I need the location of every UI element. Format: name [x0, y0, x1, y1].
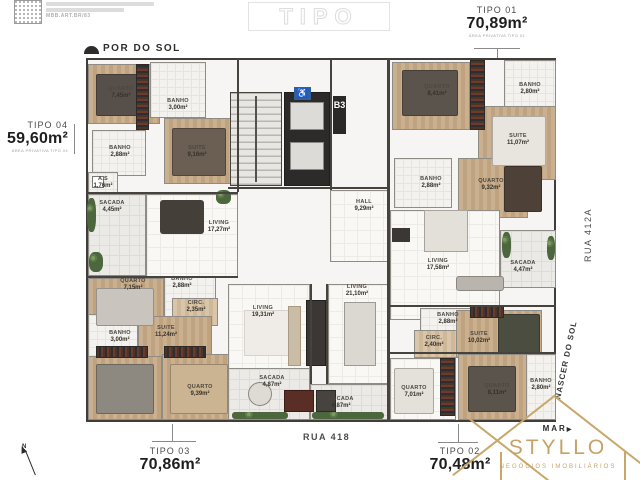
room-label: QUARTO7,01m² — [401, 385, 427, 399]
wall — [389, 352, 556, 354]
room-label: BANHO2,80m² — [530, 378, 552, 392]
room-label: LIVING17,27m² — [208, 220, 230, 234]
wardrobe — [440, 358, 455, 416]
room-label: QUARTO8,41m² — [424, 84, 450, 98]
dining-table — [160, 200, 204, 234]
tipo-watermark-text: TIPO — [279, 4, 358, 30]
street-rua-412a: RUA 412A — [583, 208, 593, 262]
plant-icon — [89, 252, 103, 272]
room-label: BANHO2,88m² — [420, 176, 442, 190]
block-sign-b3: B3 — [333, 96, 346, 134]
unit-area: 70,48m² — [410, 456, 510, 474]
room-label: SACADA4,47m² — [510, 260, 535, 274]
elevator-car — [290, 142, 324, 170]
unit-caption: ÁREA PRIVATIVA TIPO 04 — [4, 148, 68, 153]
sunset-icon — [84, 46, 99, 54]
bed — [96, 288, 154, 326]
room-label: SUITE11,07m² — [507, 133, 529, 147]
room-label: SACADA4,87m² — [328, 396, 353, 410]
connector-line — [458, 424, 459, 442]
wall — [86, 192, 238, 194]
shelf — [470, 60, 485, 130]
room-label: BANHO3,00m² — [167, 98, 189, 112]
sunrise-label: NASCER DO SOL — [553, 320, 578, 400]
connector-line — [74, 124, 75, 154]
fine-print-line — [46, 2, 154, 6]
unit-label: TIPO 03 — [120, 446, 220, 456]
room-label: LIVING21,10m² — [346, 284, 368, 298]
unit-tipo-01: TIPO 01 70,89m² ÁREA PRIVATIVA TIPO 01 — [447, 5, 547, 38]
dining-table — [344, 302, 376, 366]
unit-label: TIPO 02 — [410, 446, 510, 456]
bed — [498, 314, 540, 354]
connector-line — [438, 442, 478, 443]
unit-label: TIPO 01 — [447, 5, 547, 15]
compass-needle-icon — [25, 451, 36, 475]
tipo-watermark: TIPO — [248, 2, 390, 31]
qr-code — [14, 0, 42, 24]
unit-area: 59,60m² — [4, 130, 68, 148]
sunset-label: POR DO SOL — [103, 43, 181, 54]
room-label: QUARTO9,32m² — [478, 178, 504, 192]
room-label: CIRC.2,40m² — [424, 335, 443, 349]
room-label: LIVING19,31m² — [252, 305, 274, 319]
unit-tipo-03: TIPO 03 70,86m² — [120, 446, 220, 474]
wall — [237, 58, 239, 192]
room-label: LIVING17,58m² — [427, 258, 449, 272]
stairs-rail — [255, 96, 257, 182]
sofa — [288, 306, 301, 366]
logo-arrow-icon: ▶ — [567, 427, 574, 433]
logo-mar-text: MAR — [543, 424, 567, 433]
room-label: SUITE10,02m² — [468, 331, 490, 345]
room-label: SACADA4,87m² — [259, 375, 284, 389]
room-label: QUARTO9,39m² — [187, 384, 213, 398]
plant-icon — [547, 236, 555, 260]
kitchen-counter — [306, 300, 326, 366]
fine-print-line — [46, 8, 124, 12]
qr-link-text: MBB.ART.BR/83 — [46, 13, 91, 19]
logo-brand-subtitle: NEGÓCIOS IMOBILIÁRIOS — [500, 464, 617, 470]
wall — [330, 58, 332, 190]
logo-brand-top: MAR▶ — [543, 424, 574, 433]
wall — [389, 305, 556, 307]
connector-line — [172, 424, 173, 441]
bed — [96, 364, 154, 414]
kitchen-counter — [392, 228, 410, 242]
room-label: BANHO2,80m² — [519, 82, 541, 96]
unit-tipo-04: TIPO 04 59,60m² ÁREA PRIVATIVA TIPO 04 — [4, 120, 68, 153]
unit-area: 70,89m² — [447, 15, 547, 33]
unit-label: TIPO 04 — [4, 120, 68, 130]
shelf — [96, 346, 148, 358]
room-label: QUARTO7,45m² — [108, 86, 134, 100]
connector-line — [152, 441, 196, 442]
room-label: A.S1,76m² — [93, 176, 112, 190]
bed — [504, 166, 542, 212]
dining-table — [424, 210, 468, 252]
connector-line — [497, 48, 498, 58]
room-label: BANHO2,88m² — [109, 145, 131, 159]
elevator-car — [290, 102, 324, 130]
room-label: BANHO2,88m² — [171, 276, 193, 290]
room-label: BANHO3,00m² — [109, 330, 131, 344]
room-label: SACADA4,45m² — [99, 200, 124, 214]
hedge-icon — [312, 412, 384, 419]
accessibility-icon: ♿ — [294, 87, 311, 100]
room-label: HALL9,29m² — [354, 199, 373, 213]
wall — [310, 284, 312, 384]
wall — [387, 58, 390, 422]
room-label: QUARTO7,15m² — [120, 278, 146, 292]
floorplan-sheet: MBB.ART.BR/83 POR DO SOL TIPO TIPO 01 70… — [0, 0, 640, 480]
hedge-icon — [232, 412, 288, 419]
plant-icon — [502, 232, 511, 258]
shelf — [164, 346, 206, 358]
unit-caption: ÁREA PRIVATIVA TIPO 01 — [447, 33, 547, 38]
wall — [86, 276, 238, 278]
logo-frame-right — [624, 452, 626, 480]
room-label: QUARTO8,11m² — [484, 383, 510, 397]
room-label: SUITE11,24m² — [155, 325, 177, 339]
room-label: CIRC.2,35m² — [186, 300, 205, 314]
wall — [326, 284, 328, 384]
unit-area: 70,86m² — [120, 456, 220, 474]
room-label: BANHO2,88m² — [437, 312, 459, 326]
street-rua-418: RUA 418 — [303, 432, 350, 442]
kitchen-stove — [284, 390, 314, 412]
shelf — [136, 64, 149, 130]
logo-brand-name: STYLLO — [509, 436, 608, 460]
room-label: SUITE9,16m² — [187, 145, 206, 159]
sofa — [456, 276, 504, 291]
plant-icon — [87, 198, 96, 232]
wall — [228, 187, 388, 189]
shelf — [470, 306, 504, 318]
